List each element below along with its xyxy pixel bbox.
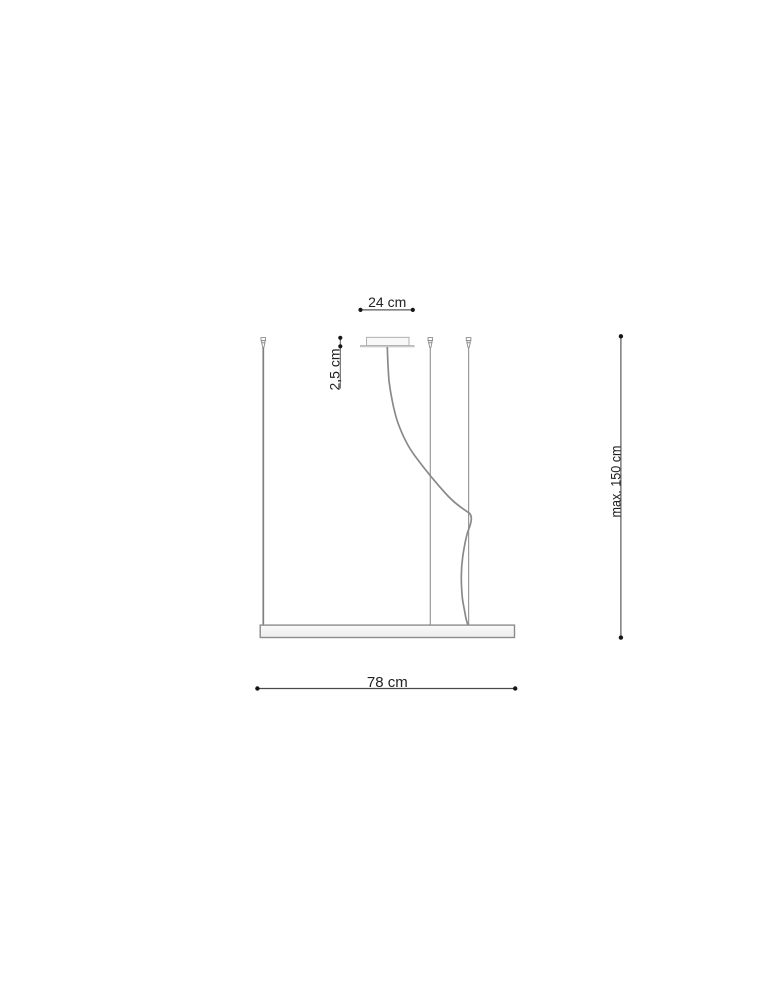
svg-text:78 cm: 78 cm [367,674,408,691]
svg-text:2,5 cm: 2,5 cm [327,348,343,390]
svg-text:24 cm: 24 cm [368,294,406,310]
svg-text:max. 150 cm: max. 150 cm [607,446,623,518]
